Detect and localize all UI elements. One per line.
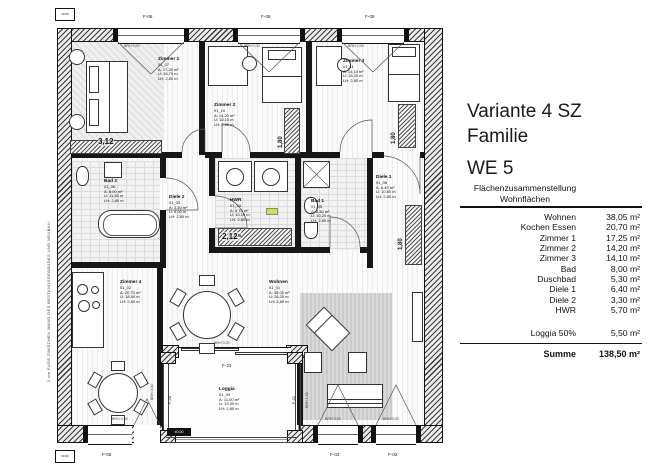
- table-row: Duschbad5,30 m²: [462, 274, 640, 284]
- room-height: LH: 2,80 m: [104, 199, 124, 204]
- row-value: 17,25 m²: [590, 233, 640, 243]
- window-tag-f02: F-02: [388, 452, 397, 457]
- window-tag-f26: F-26: [168, 396, 172, 404]
- row-value: 5,30 m²: [590, 274, 640, 284]
- row-label: Bad: [462, 264, 590, 274]
- table-header-line1: Flächenzusammenstellung: [460, 183, 590, 193]
- row-value: 20,70 m²: [590, 222, 640, 232]
- row-label: HWR: [462, 305, 590, 315]
- brh-label: BRH 0,00: [383, 417, 399, 421]
- row-label: Wohnen: [462, 212, 590, 222]
- room-label-zimmer2: Zimmer 2 01_10 A: 14,20 m² U: 15,10 m LH…: [214, 104, 235, 128]
- table-row: Wohnen38,05 m²: [462, 212, 640, 222]
- room-label-hwr: HWR 01_04 A: 5,70 m² U: 10,10 m LH: 2,80…: [230, 199, 250, 223]
- room-height: LH: 2,80 m: [376, 195, 396, 200]
- brh-label: BRH 0,00: [214, 341, 230, 345]
- row-label: Kochen Essen: [462, 222, 590, 232]
- unit-title: WE 5: [467, 157, 513, 181]
- window-tag-f09: F-09: [365, 14, 374, 19]
- room-height: LH: 2,80 m: [269, 300, 290, 305]
- room-height: LH: 2,80 m: [214, 123, 235, 128]
- variant-subtitle: Familie: [467, 125, 528, 149]
- level-marker: ±0,00: [55, 450, 75, 463]
- brh-label: BRH 0,00: [325, 417, 341, 421]
- table-header-line2: Wohnflächen: [460, 194, 590, 204]
- room-height: LH: 2,80 m: [158, 77, 179, 82]
- room-label-diele2: Diele 2 01_03 A: 3,30 m² U: 8,00 m LH: 2…: [169, 196, 189, 220]
- room-label-zimmer1: Zimmer 1 01_07 A: 17,25 m² U: 16,70 m LH…: [158, 58, 179, 82]
- area-table: Wohnen38,05 m² Kochen Essen20,70 m² Zimm…: [462, 212, 640, 315]
- room-height: LH: 2,80 m: [219, 407, 239, 412]
- divider: [460, 343, 642, 344]
- row-label: Duschbad: [462, 274, 590, 284]
- window-tag-f03: F-03: [330, 452, 339, 457]
- level-marker-loggia: ±0,00: [167, 428, 191, 436]
- fuge-note: 2 cm FUGE ZWISCHEN WAND DES BESTANDSGEBÄ…: [46, 222, 51, 382]
- table-row: Zimmer 117,25 m²: [462, 233, 640, 243]
- row-value: 38,05 m²: [590, 212, 640, 222]
- brh-label: BRH 1,35: [305, 392, 309, 408]
- window-tag-f23: F-23: [222, 363, 231, 368]
- info-panel: Variante 4 SZ Familie WE 5 Flächenzusamm…: [455, 0, 650, 476]
- brh-label: BRH 0,00: [112, 417, 128, 421]
- sum-label: Summe: [462, 349, 590, 359]
- row-label: Diele 1: [462, 284, 590, 294]
- brh-label: BRH 0,00: [348, 44, 364, 48]
- room-label-wohnen: Wohnen 01_01 A: 38,05 m² U: 26,20 m LH: …: [269, 281, 290, 305]
- room-height: LH: 2,80 m: [230, 218, 250, 223]
- floorplan-sheet: 3,12 1,80 1,80 2,12⁵: [0, 0, 650, 476]
- table-row: Diele 16,40 m²: [462, 284, 640, 294]
- window-tag-f06: F-06: [143, 14, 152, 19]
- brh-label: BRH 0,00: [244, 44, 260, 48]
- table-row: HWR5,70 m²: [462, 305, 640, 315]
- brh-label: BRH 0,00: [150, 384, 154, 400]
- row-value: 8,00 m²: [590, 264, 640, 274]
- table-row: Diele 23,30 m²: [462, 295, 640, 305]
- room-label-zimmer3: Zimmer 3 01_11 A: 14,10 m² U: 15,20 m LH…: [343, 60, 364, 84]
- row-value: 6,40 m²: [590, 284, 640, 294]
- table-row: Zimmer 314,10 m²: [462, 253, 640, 263]
- window-tag-f08: F-08: [261, 14, 270, 19]
- brh-label: BRH 0,00: [124, 44, 140, 48]
- window-tag-f22: F-22: [292, 396, 296, 404]
- row-label: Zimmer 2: [462, 243, 590, 253]
- divider: [460, 206, 642, 208]
- row-label: Diele 2: [462, 295, 590, 305]
- row-label: Loggia 50%: [462, 328, 590, 338]
- room-label-bad2: Bad 2 01_06 A: 8,00 m² U: 11,50 m LH: 2,…: [104, 180, 124, 204]
- row-label: Zimmer 1: [462, 233, 590, 243]
- window-tag-f05: F-05: [102, 452, 111, 457]
- floor-plan: 3,12 1,80 1,80 2,12⁵: [0, 0, 455, 476]
- room-label-diele1: Diele 1 01_08 A: 6,40 m² U: 10,80 m LH: …: [376, 176, 396, 200]
- table-row: Bad8,00 m²: [462, 264, 640, 274]
- room-label-bad1: Bad 1 01_05 A: 5,30 m² U: 10,20 m LH: 2,…: [311, 200, 331, 224]
- room-label-loggia: Loggia 01_09 A: 11,00 m² U: 13,30 m LH: …: [219, 388, 239, 412]
- table-row: Zimmer 214,20 m²: [462, 243, 640, 253]
- highlight-marker: [266, 208, 278, 215]
- variant-title: Variante 4 SZ: [467, 100, 582, 124]
- loggia-row: Loggia 50%5,50 m²: [462, 328, 640, 338]
- room-height: LH: 2,80 m: [120, 300, 141, 305]
- sum-row: Summe138,50 m²: [462, 349, 640, 359]
- level-marker: ±0,00: [55, 8, 75, 21]
- row-value: 5,70 m²: [590, 305, 640, 315]
- row-value: 5,50 m²: [590, 328, 640, 338]
- row-label: Zimmer 3: [462, 253, 590, 263]
- room-height: LH: 2,80 m: [311, 219, 331, 224]
- sum-value: 138,50 m²: [590, 349, 640, 359]
- table-row: Kochen Essen20,70 m²: [462, 222, 640, 232]
- row-value: 14,20 m²: [590, 243, 640, 253]
- room-height: LH: 2,80 m: [169, 215, 189, 220]
- row-value: 14,10 m²: [590, 253, 640, 263]
- row-value: 3,30 m²: [590, 295, 640, 305]
- room-height: LH: 2,80 m: [343, 79, 364, 84]
- room-label-zimmer4: Zimmer 4 01_02 A: 20,70 m² U: 18,50 m LH…: [120, 281, 141, 305]
